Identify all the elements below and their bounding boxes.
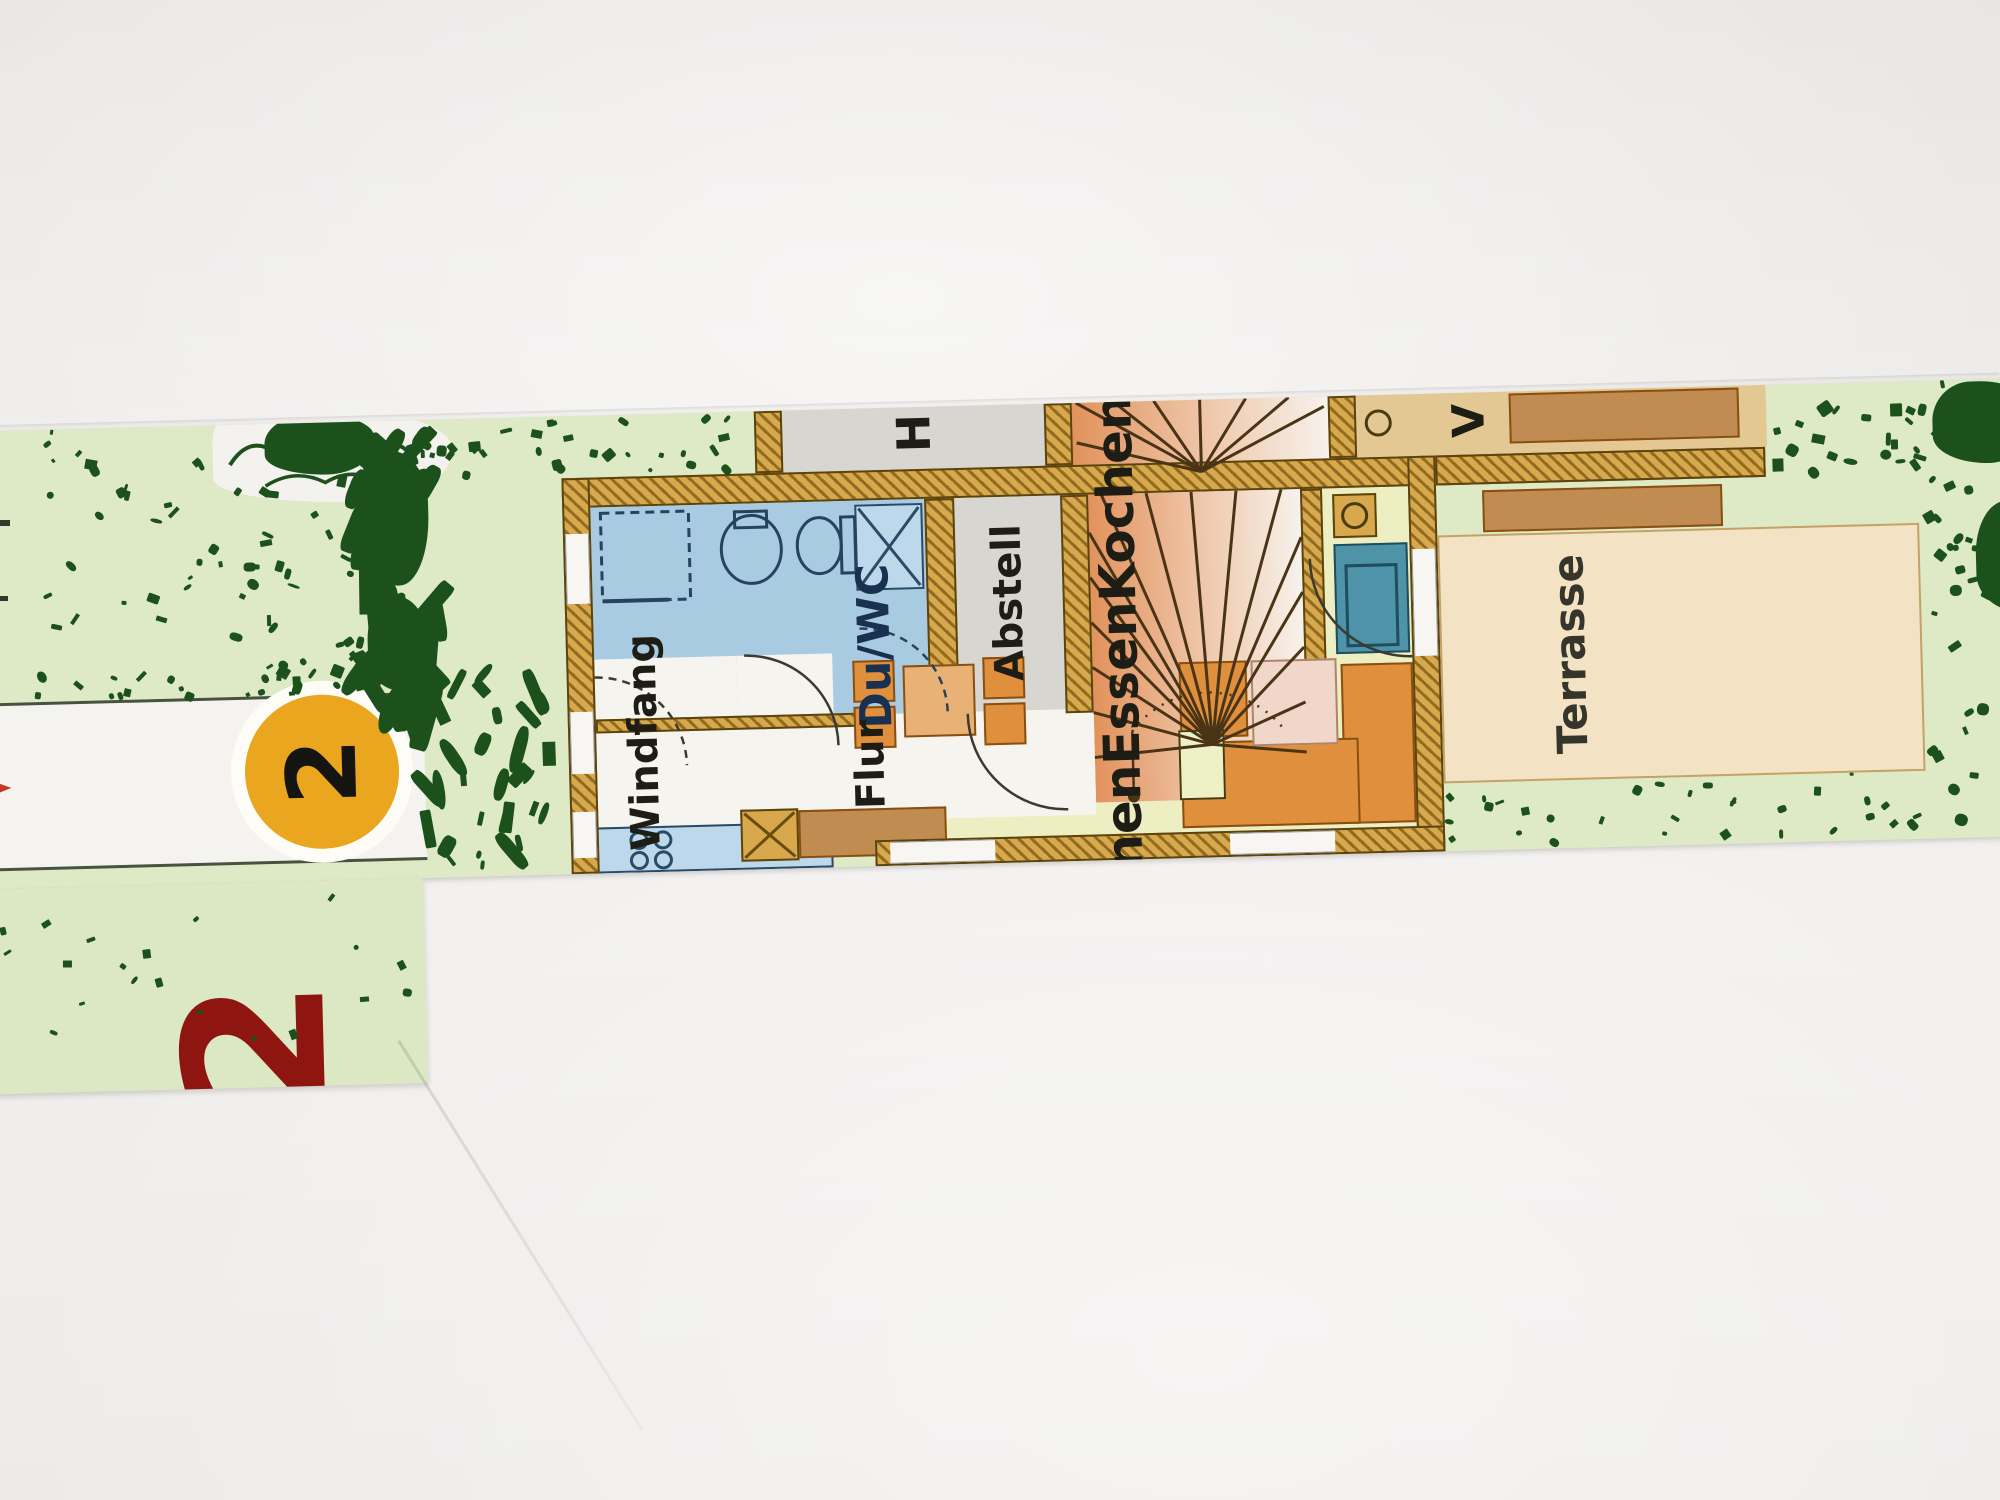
vegetation-speckle (1863, 796, 1871, 806)
vegetation-speckle (1954, 813, 1969, 828)
vegetation-speckle (480, 860, 485, 869)
vegetation-speckle (43, 592, 53, 600)
vegetation-speckle (1776, 804, 1787, 814)
vegetation-speckle (41, 919, 52, 929)
vegetation-speckle (35, 692, 41, 699)
vegetation-speckle (283, 568, 292, 580)
vegetation-speckle (1703, 783, 1713, 789)
room-label-v: V (1444, 403, 1494, 438)
vegetation-speckle (1880, 801, 1890, 811)
vegetation-speckle (1484, 801, 1495, 812)
vegetation-speckle (1516, 830, 1523, 836)
vegetation-speckle (1909, 458, 1922, 472)
vegetation-speckle (718, 433, 730, 442)
vegetation-speckle (35, 670, 49, 685)
vegetation-speckle (1545, 813, 1556, 824)
coffee-table (1250, 658, 1338, 746)
tree-blob (1931, 380, 2000, 465)
vegetation-speckle (65, 560, 78, 573)
vegetation-speckle (335, 641, 345, 649)
vegetation-speckle (1861, 413, 1871, 421)
vegetation-speckle (1599, 816, 1605, 825)
vegetation-speckle (51, 623, 63, 630)
terrace (1437, 523, 1925, 784)
vegetation-speckle (123, 688, 132, 697)
vegetation-speckle (1948, 640, 1963, 653)
vegetation-speckle (110, 675, 118, 681)
vegetation-speckle (1687, 789, 1693, 797)
vegetation-speckle (167, 678, 175, 686)
armchair (1178, 661, 1248, 739)
vegetation-speckle (63, 961, 72, 968)
vegetation-speckle (493, 830, 531, 872)
vegetation-speckle (1794, 420, 1804, 429)
vegetation-speckle (187, 575, 193, 581)
vegetation-speckle (476, 850, 483, 859)
wall-neighbor-2 (1044, 403, 1074, 466)
vegetation-speckle (260, 673, 270, 684)
vegetation-speckle (260, 539, 273, 547)
vegetation-speckle (274, 560, 285, 573)
vegetation-speckle (130, 975, 139, 985)
plot-number: 2 (174, 964, 338, 1094)
vegetation-speckle (1940, 380, 1946, 389)
vegetation-speckle (121, 601, 126, 605)
vegetation-speckle (307, 668, 316, 679)
map-strip-extension: 2 (0, 878, 428, 1095)
vegetation-speckle (1655, 781, 1665, 787)
vegetation-speckle (1880, 449, 1892, 460)
vegetation-speckle (192, 915, 199, 922)
vegetation-speckle (78, 1001, 85, 1006)
map-strip: 2 (0, 377, 2000, 1132)
vegetation-speckle (257, 688, 266, 696)
vegetation-speckle (473, 731, 494, 757)
room-label-du-wc: Du/WC (848, 563, 902, 729)
vegetation-speckle (542, 741, 555, 765)
vegetation-speckle (287, 583, 300, 590)
vegetation-speckle (624, 451, 631, 458)
vegetation-speckle (397, 959, 407, 970)
vegetation-speckle (1943, 479, 1957, 491)
vegetation-speckle (124, 490, 131, 501)
vegetation-speckle (477, 811, 485, 826)
vegetation-speckle (1495, 800, 1505, 806)
vegetation-speckle (552, 420, 559, 426)
vegetation-speckle (167, 507, 179, 519)
vegetation-speckle (472, 678, 492, 698)
vegetation-speckle (84, 459, 98, 471)
vegetation-speckle (1662, 831, 1668, 836)
vegetation-speckle (1917, 403, 1927, 416)
vegetation-speckle (163, 502, 172, 508)
vegetation-speckle (1445, 792, 1455, 802)
vegetation-speckle (354, 945, 359, 950)
vegetation-speckle (1784, 442, 1800, 458)
vegetation-speckle (1631, 783, 1643, 796)
vegetation-speckle (1889, 818, 1899, 828)
shaft-box (740, 808, 799, 862)
vegetation-speckle (491, 767, 511, 802)
vegetation-speckle (289, 691, 296, 696)
vegetation-speckle (1928, 475, 1937, 484)
vegetation-speckle (108, 692, 115, 699)
vegetation-speckle (1946, 782, 1962, 798)
vegetation-speckle (327, 893, 335, 902)
direction-arrow-icon (0, 775, 12, 802)
vegetation-speckle (1548, 836, 1561, 848)
vegetation-speckle (86, 936, 95, 942)
vegetation-speckle (0, 926, 8, 935)
vegetation-speckle (93, 510, 105, 522)
vegetation-speckle (120, 963, 128, 971)
vegetation-speckle (601, 448, 616, 463)
vegetation-speckle (154, 977, 164, 987)
vegetation-speckle (156, 615, 168, 623)
vegetation-speckle (403, 988, 413, 997)
dining-table (902, 664, 976, 738)
vegetation-speckle (1806, 465, 1822, 481)
vegetation-speckle (1931, 611, 1938, 617)
unit-badge-number: 2 (265, 737, 379, 807)
vegetation-speckle (1773, 458, 1784, 472)
vegetation-speckle (261, 531, 273, 539)
vegetation-speckle (346, 570, 355, 578)
vegetation-speckle (1891, 440, 1898, 450)
vegetation-speckle (1815, 399, 1833, 417)
vegetation-speckle (45, 490, 54, 499)
vegetation-speckle (1963, 484, 1973, 494)
room-label-h: H (888, 413, 941, 453)
vegetation-speckle (617, 416, 630, 427)
vegetation-speckle (491, 707, 503, 726)
vegetation-speckle (1905, 405, 1916, 415)
vegetation-speckle (147, 592, 161, 604)
vegetation-speckle (70, 613, 80, 625)
vegetation-speckle (563, 434, 574, 442)
room-label-abstell: Abstell (984, 524, 1033, 682)
vegetation-speckle (330, 664, 345, 679)
vegetation-speckle (680, 449, 687, 457)
vegetation-speckle (245, 577, 261, 592)
vegetation-speckle (42, 440, 51, 449)
vegetation-speckle (1773, 426, 1782, 435)
vegetation-speckle (238, 593, 245, 600)
room-label-terrasse: Terrasse (1544, 554, 1596, 755)
vegetation-speckle (1814, 787, 1822, 796)
dining-chair (983, 702, 1026, 745)
vegetation-speckle (1934, 548, 1949, 563)
vegetation-speckle (207, 543, 220, 557)
vegetation-speckle (325, 529, 334, 541)
vegetation-speckle (1952, 531, 1966, 545)
vegetation-speckle (479, 448, 488, 458)
vegetation-speckle (499, 427, 511, 434)
vegetation-speckle (356, 636, 366, 649)
vegetation-speckle (276, 673, 282, 681)
vegetation-speckle (461, 470, 471, 481)
vegetation-speckle (723, 414, 732, 423)
terrace-door-gap (1412, 549, 1439, 657)
vegetation-speckle (435, 834, 457, 859)
entrance-door-gap (570, 712, 596, 775)
vegetation-speckle (468, 441, 480, 452)
vegetation-speckle (1963, 727, 1970, 736)
vegetation-speckle (135, 671, 146, 682)
vegetation-speckle (420, 450, 424, 459)
vegetation-speckle (1952, 544, 1959, 551)
neighbor-bench (1509, 388, 1740, 444)
window-duwc (565, 534, 591, 605)
vegetation-speckle (1890, 403, 1903, 416)
wood-stove (1333, 542, 1410, 654)
stairs-newel (1178, 729, 1226, 800)
vegetation-speckle (1904, 417, 1914, 426)
vegetation-speckle (648, 468, 654, 474)
vegetation-speckle (700, 413, 712, 425)
wall-neighbor-1 (754, 411, 784, 474)
vegetation-speckle (589, 449, 598, 459)
vegetation-speckle (1978, 537, 1986, 550)
vegetation-speckle (196, 558, 203, 566)
vegetation-speckle (1965, 537, 1973, 544)
vegetation-speckle (529, 800, 540, 816)
vegetation-speckle (1849, 773, 1853, 776)
vegetation-speckle (75, 450, 83, 458)
vegetation-speckle (150, 518, 163, 524)
room-label-flur: Flur (847, 719, 894, 809)
vegetation-speckle (4, 949, 13, 956)
vegetation-speckle (1949, 584, 1962, 596)
vegetation-speckle (1444, 819, 1453, 825)
vegetation-speckle (1719, 828, 1732, 841)
vegetation-speckle (1922, 510, 1937, 525)
vegetation-speckle (1670, 815, 1680, 823)
vegetation-speckle (1521, 806, 1530, 816)
vegetation-speckle (49, 430, 53, 436)
window-bottom-2 (1230, 830, 1336, 855)
terrace-bench (1482, 484, 1723, 532)
vegetation-speckle (535, 446, 542, 456)
vegetation-speckle (51, 458, 56, 464)
vegetation-speckle (310, 511, 319, 520)
chimney-icon (1332, 493, 1377, 538)
room-label-windfang: Windfang (619, 634, 669, 852)
vegetation-speckle (229, 632, 243, 644)
vegetation-speckle (1843, 457, 1858, 465)
vegetation-speckle (1969, 772, 1979, 779)
vegetation-speckle (218, 561, 222, 567)
vegetation-speckle (686, 460, 698, 471)
page-edge-mark (0, 596, 8, 601)
wall-neighbor-3 (1328, 396, 1358, 459)
vegetation-speckle (1811, 433, 1825, 444)
window-kitchen (572, 812, 597, 859)
vegetation-speckle (1976, 702, 1989, 716)
page-edge-mark (0, 520, 10, 526)
vegetation-speckle (1896, 459, 1906, 464)
vegetation-speckle (142, 949, 151, 959)
vegetation-speckle (183, 583, 193, 592)
vegetation-speckle (1779, 829, 1783, 838)
vegetation-speckle (50, 1030, 59, 1036)
vegetation-speckle (299, 657, 308, 666)
vegetation-speckle (1954, 565, 1966, 576)
vegetation-speckle (1963, 708, 1974, 718)
window-bottom-1 (890, 839, 996, 864)
vegetation-speckle (1730, 801, 1736, 805)
vegetation-speckle (709, 444, 720, 457)
vegetation-speckle (253, 564, 261, 569)
vegetation-speckle (178, 686, 184, 692)
map-strip-main: 2 (0, 377, 2000, 890)
vegetation-speckle (265, 663, 273, 669)
vegetation-speckle (73, 681, 84, 691)
vegetation-speckle (531, 429, 543, 438)
vegetation-speckle (1832, 405, 1841, 416)
vegetation-speckle (1826, 450, 1838, 461)
vegetation-speckle (1829, 825, 1839, 835)
vegetation-speckle (1865, 812, 1875, 820)
vegetation-speckle (658, 452, 664, 458)
vegetation-speckle (1448, 835, 1456, 843)
vegetation-speckle (447, 855, 457, 866)
